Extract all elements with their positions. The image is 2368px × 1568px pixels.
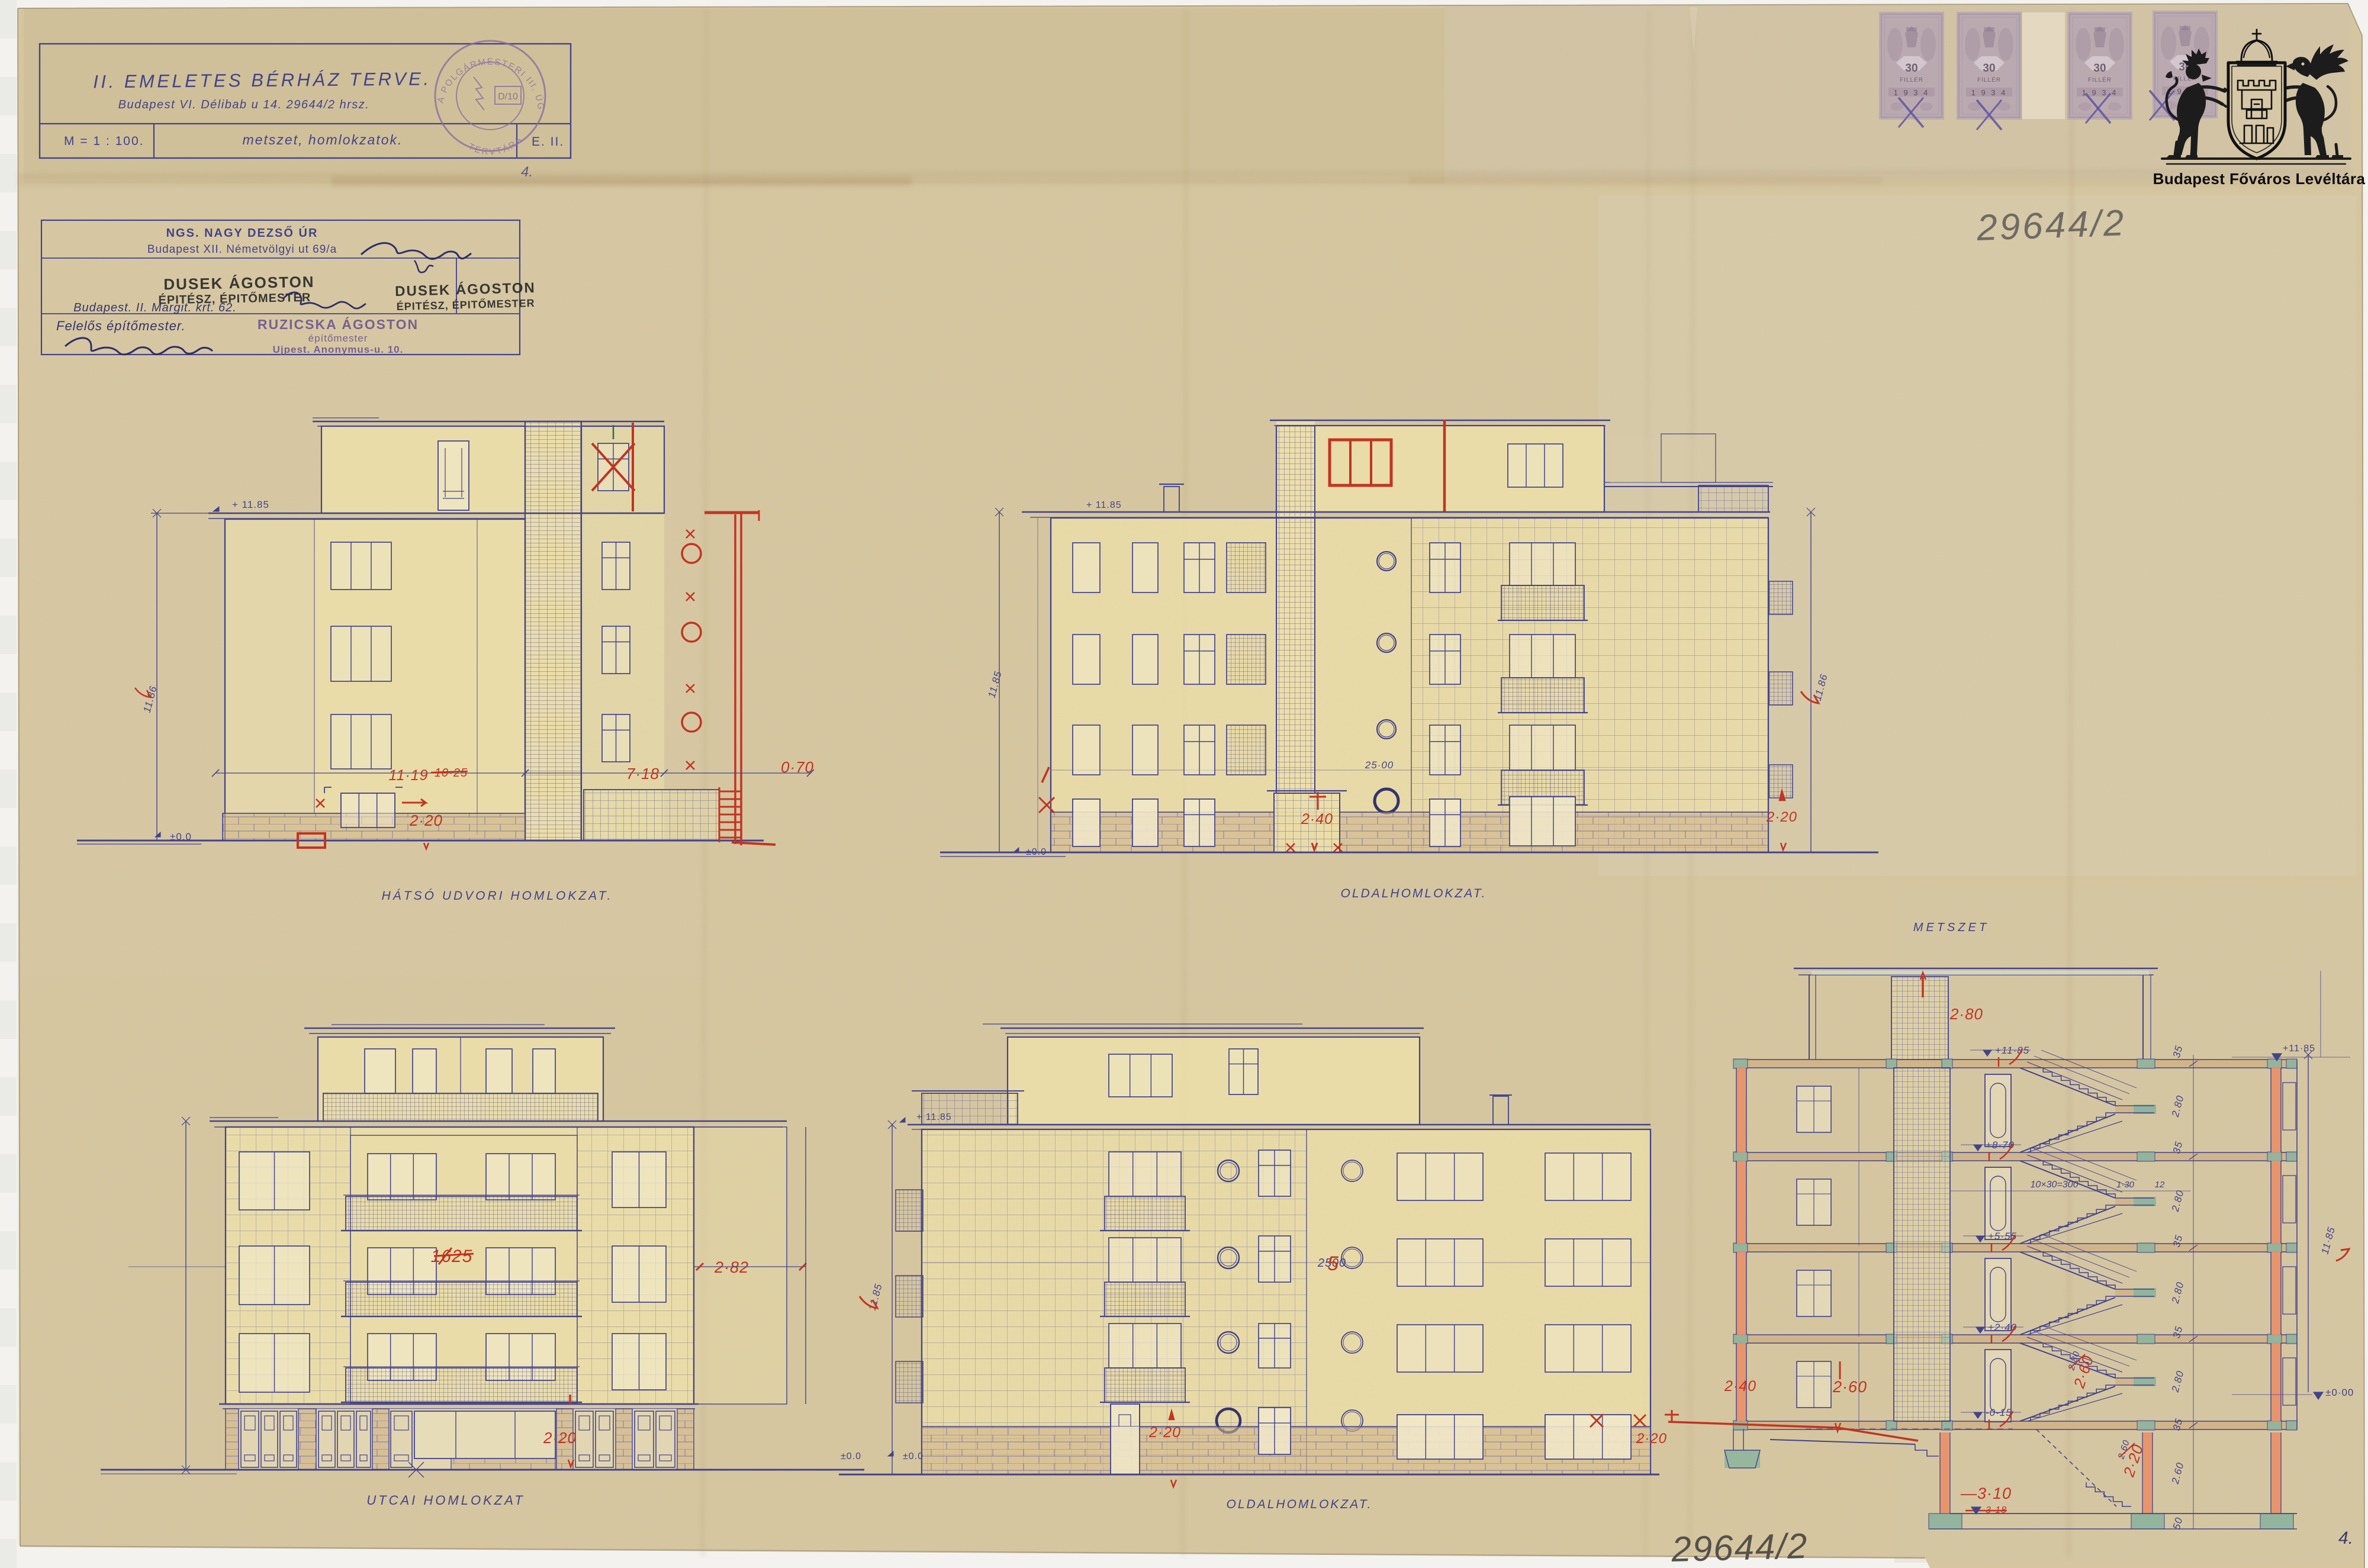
svg-text:RUZICSKA ÁGOSTON: RUZICSKA ÁGOSTON xyxy=(258,316,419,332)
svg-text:30: 30 xyxy=(1983,62,1995,75)
svg-text:2·20: 2·20 xyxy=(1636,1431,1667,1447)
svg-text:Budapest Főváros Levéltára: Budapest Főváros Levéltára xyxy=(2153,170,2366,188)
svg-text:12: 12 xyxy=(2155,1180,2165,1190)
svg-text:+11·85: +11·85 xyxy=(2283,1044,2315,1054)
svg-text:30: 30 xyxy=(1905,62,1917,75)
svg-text:2·20: 2·20 xyxy=(1766,809,1797,825)
svg-text:29644/2: 29644/2 xyxy=(1976,202,2126,249)
svg-text:2·82: 2·82 xyxy=(714,1258,749,1276)
svg-text:FILLÉR: FILLÉR xyxy=(2088,76,2112,83)
svg-text:OLDALHOMLOKZAT.: OLDALHOMLOKZAT. xyxy=(1341,887,1487,900)
svg-text:METSZET: METSZET xyxy=(1913,921,1989,934)
svg-text:+ 11.85: + 11.85 xyxy=(916,1112,952,1122)
svg-text:építőmester: építőmester xyxy=(308,333,368,344)
svg-text:M = 1 : 100.: M = 1 : 100. xyxy=(64,134,144,148)
svg-text:HÁTSÓ UDVORI HOMLOKZAT.: HÁTSÓ UDVORI HOMLOKZAT. xyxy=(382,889,613,903)
svg-text:E. II.: E. II. xyxy=(532,135,564,149)
svg-text:0·70: 0·70 xyxy=(781,758,814,776)
svg-text:UTCAI HOMLOKZAT: UTCAI HOMLOKZAT xyxy=(366,1493,525,1508)
svg-text:10·25: 10·25 xyxy=(435,767,468,780)
svg-text:±0.0: ±0.0 xyxy=(903,1451,924,1461)
svg-text:+ 11.85: + 11.85 xyxy=(1086,500,1122,510)
svg-text:11·19: 11·19 xyxy=(388,767,428,784)
svg-text:2·80: 2·80 xyxy=(1949,1005,1983,1023)
svg-text:II. EMELETES BÉRHÁZ TERVE.: II. EMELETES BÉRHÁZ TERVE. xyxy=(93,69,432,92)
svg-text:+ 11.85: + 11.85 xyxy=(232,499,269,510)
svg-text:5: 5 xyxy=(1327,1253,1339,1275)
svg-text:2·60: 2·60 xyxy=(1832,1378,1867,1396)
svg-text:±0·00: ±0·00 xyxy=(2325,1387,2354,1398)
svg-text:Felelős építőmester.: Felelős építőmester. xyxy=(56,318,186,333)
svg-text:2·20: 2·20 xyxy=(543,1429,577,1447)
svg-text:2·40: 2·40 xyxy=(1301,811,1333,828)
svg-text:±0.0: ±0.0 xyxy=(170,831,192,842)
svg-text:metszet, homlokzatok.: metszet, homlokzatok. xyxy=(243,132,403,147)
svg-text:±0.0: ±0.0 xyxy=(1026,847,1047,857)
svg-text:Budapest VI. Délibab u 14. 2: Budapest VI. Délibab u 14. 29644/2 hrsz. xyxy=(118,98,370,111)
svg-text:Budapest XII. Németvölgyi u: Budapest XII. Németvölgyi ut 69/a xyxy=(147,243,337,256)
svg-text:3·18: 3·18 xyxy=(1986,1505,2007,1515)
svg-text:25·00: 25·00 xyxy=(1365,759,1394,771)
svg-text:4.: 4. xyxy=(2338,1528,2353,1548)
svg-text:+11·85: +11·85 xyxy=(1995,1045,2029,1056)
svg-text:7·18: 7·18 xyxy=(626,765,659,783)
svg-text:2·40: 2·40 xyxy=(1724,1378,1756,1395)
svg-text:30: 30 xyxy=(2093,62,2106,75)
svg-text:D/10: D/10 xyxy=(498,92,518,102)
svg-text:29644/2: 29644/2 xyxy=(1671,1526,1809,1568)
svg-text:4.: 4. xyxy=(521,164,533,180)
svg-text:1 9 3 4: 1 9 3 4 xyxy=(1894,88,1930,97)
svg-text:2·20: 2·20 xyxy=(409,812,443,829)
svg-text:DUSEK ÁGOSTON: DUSEK ÁGOSTON xyxy=(163,273,315,293)
svg-text:NGS. NAGY DEZSŐ ÚR: NGS. NAGY DEZSŐ ÚR xyxy=(166,226,318,240)
svg-text:±0.0: ±0.0 xyxy=(841,1451,861,1461)
svg-text:FILLÉR: FILLÉR xyxy=(1977,76,2001,83)
svg-text:1·30: 1·30 xyxy=(2116,1180,2135,1190)
svg-text:Ujpest. Anonymus-u. 10.: Ujpest. Anonymus-u. 10. xyxy=(273,344,404,355)
svg-text:2·20: 2·20 xyxy=(1148,1424,1181,1441)
svg-text:-0·15: -0·15 xyxy=(1986,1407,2012,1418)
svg-text:1 9 3 4: 1 9 3 4 xyxy=(1971,88,2007,97)
svg-text:FILLÉR: FILLÉR xyxy=(1900,76,1923,83)
svg-text:—3·10: —3·10 xyxy=(1960,1485,2012,1502)
svg-text:Budapest. II. Margit. krt. 62.: Budapest. II. Margit. krt. 62. xyxy=(73,301,237,314)
svg-text:OLDALHOMLOKZAT.: OLDALHOMLOKZAT. xyxy=(1227,1498,1373,1511)
svg-text:10×30=300: 10×30=300 xyxy=(2031,1180,2079,1190)
